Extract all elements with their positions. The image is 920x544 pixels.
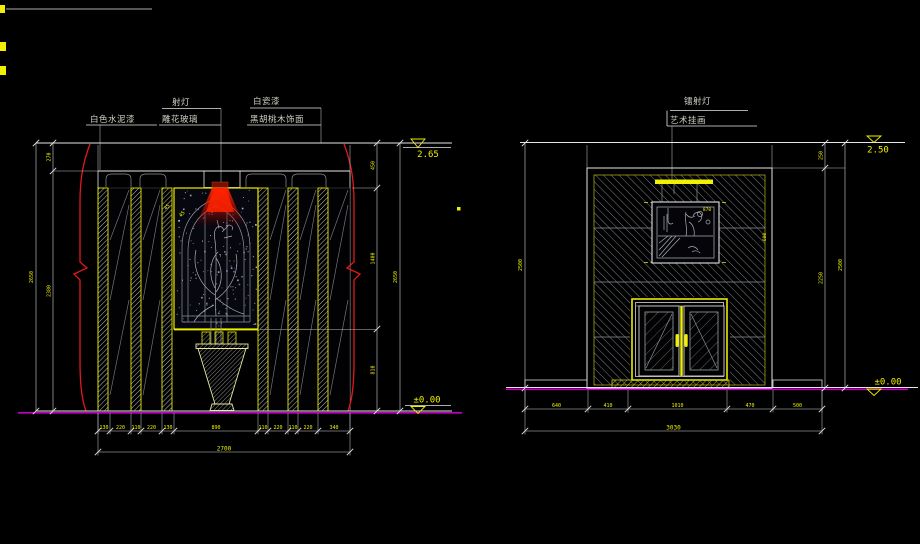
dim-value: 340 xyxy=(329,425,338,431)
dim-value: 270 xyxy=(47,152,53,161)
spotlight-fixture xyxy=(212,182,228,188)
elevation-marker-top: 2.65 xyxy=(403,139,451,160)
dim-value: 110 xyxy=(258,425,267,431)
elevation-value: ±0.00 xyxy=(413,396,440,406)
elevation-value: 2.65 xyxy=(417,150,439,160)
dim-total-bottom: 2700 xyxy=(217,446,232,453)
vase-base xyxy=(210,404,234,411)
dim-total-right: 2500 xyxy=(838,259,844,271)
left-elevation-drawing: 射灯 白色水泥漆 雕花玻璃 白瓷漆 黑胡桃木饰面 xyxy=(18,96,462,456)
dim-total-bottom: 3030 xyxy=(666,425,681,432)
dim-value: 1400 xyxy=(371,252,377,264)
dim-value: 220 xyxy=(273,425,282,431)
dim-value: 250 xyxy=(819,151,825,160)
door-handle-left xyxy=(676,334,679,347)
door-handle-right xyxy=(685,334,688,347)
valance xyxy=(140,174,166,187)
dim-total-right: 2650 xyxy=(393,271,399,283)
elevation-value: 2.50 xyxy=(867,146,889,156)
label-spot-light: 射灯 xyxy=(172,97,190,108)
right-annotations: 镭射灯 艺术挂画 xyxy=(667,96,757,180)
vase-assembly xyxy=(174,318,258,411)
dim-value: 500 xyxy=(793,403,802,409)
dim-value: 2250 xyxy=(819,272,825,284)
vase-body xyxy=(198,349,246,405)
elevation-marker-top: 2.50 xyxy=(867,136,889,156)
left-wall-unit: 45 45 xyxy=(74,144,360,411)
valance xyxy=(246,174,286,187)
dim-value: 220 xyxy=(303,425,312,431)
dim-value: 220 xyxy=(116,425,125,431)
dim-value: 110 xyxy=(131,425,140,431)
art-picture-frame: 870 xyxy=(652,202,719,263)
label-white-cement-paint: 白色水泥漆 xyxy=(90,114,135,125)
label-art-picture: 艺术挂画 xyxy=(670,115,706,126)
elevation-marker-floor: ±0.00 xyxy=(867,378,902,396)
dim-value: 640 xyxy=(552,403,561,409)
right-elevation-drawing: 镭射灯 艺术挂画 xyxy=(506,96,918,435)
elevation-value: ±0.00 xyxy=(874,378,901,388)
label-carved-glass: 雕花玻璃 xyxy=(162,114,198,125)
red-break-line-left xyxy=(74,144,90,411)
dim-value: 220 xyxy=(147,425,156,431)
vase-rim xyxy=(196,344,248,349)
valance xyxy=(106,174,131,187)
dim-total-left: 2650 xyxy=(29,271,35,283)
dim-value: 1010 xyxy=(671,403,683,409)
wall-note: 600 xyxy=(762,233,768,241)
label-white-lacquer: 白瓷漆 xyxy=(253,96,280,107)
dim-value: 110 xyxy=(288,425,297,431)
label-laser-light: 镭射灯 xyxy=(684,96,711,107)
dim-value: 450 xyxy=(371,161,377,170)
dim-value: 130 xyxy=(99,425,108,431)
valance xyxy=(292,174,326,187)
dim-value: 130 xyxy=(163,425,172,431)
dim-value: 410 xyxy=(603,403,612,409)
dim-value: 470 xyxy=(745,403,754,409)
label-black-walnut-veneer: 黑胡桃木饰面 xyxy=(250,114,304,125)
carved-glass-panel xyxy=(174,182,258,329)
cad-drawing-canvas[interactable]: 射灯 白色水泥漆 雕花玻璃 白瓷漆 黑胡桃木饰面 xyxy=(0,0,920,544)
screen-artifacts xyxy=(0,5,461,211)
dim-value: 2380 xyxy=(47,285,53,297)
baseboard-right xyxy=(773,380,822,388)
baseboard-left xyxy=(525,380,587,388)
dim-value: 890 xyxy=(211,425,220,431)
right-wall-elevation: 870 600 xyxy=(525,168,822,388)
picture-light-bar xyxy=(655,180,713,185)
stray-mark xyxy=(457,207,461,211)
cabinet-plinth xyxy=(612,380,729,388)
dim-value: 810 xyxy=(371,365,377,374)
dim-total-left: 2500 xyxy=(518,259,524,271)
picture-note: 870 xyxy=(703,207,711,213)
